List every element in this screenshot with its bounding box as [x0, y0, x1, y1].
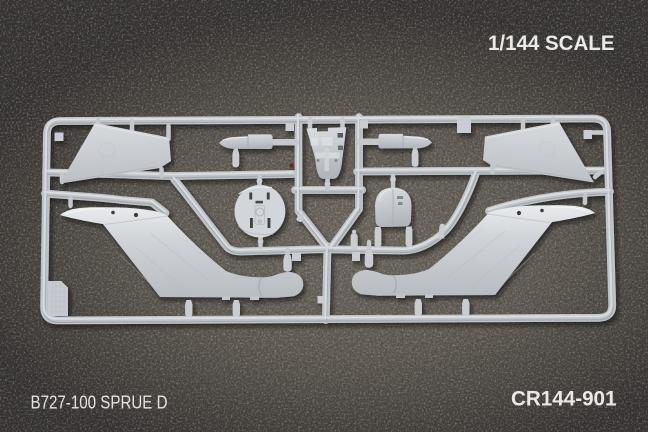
svg-text:CR144-901: CR144-901: [511, 388, 617, 411]
svg-text:1/144 SCALE: 1/144 SCALE: [488, 32, 615, 55]
svg-text:B727-100 SPRUE D: B727-100 SPRUE D: [31, 393, 168, 413]
